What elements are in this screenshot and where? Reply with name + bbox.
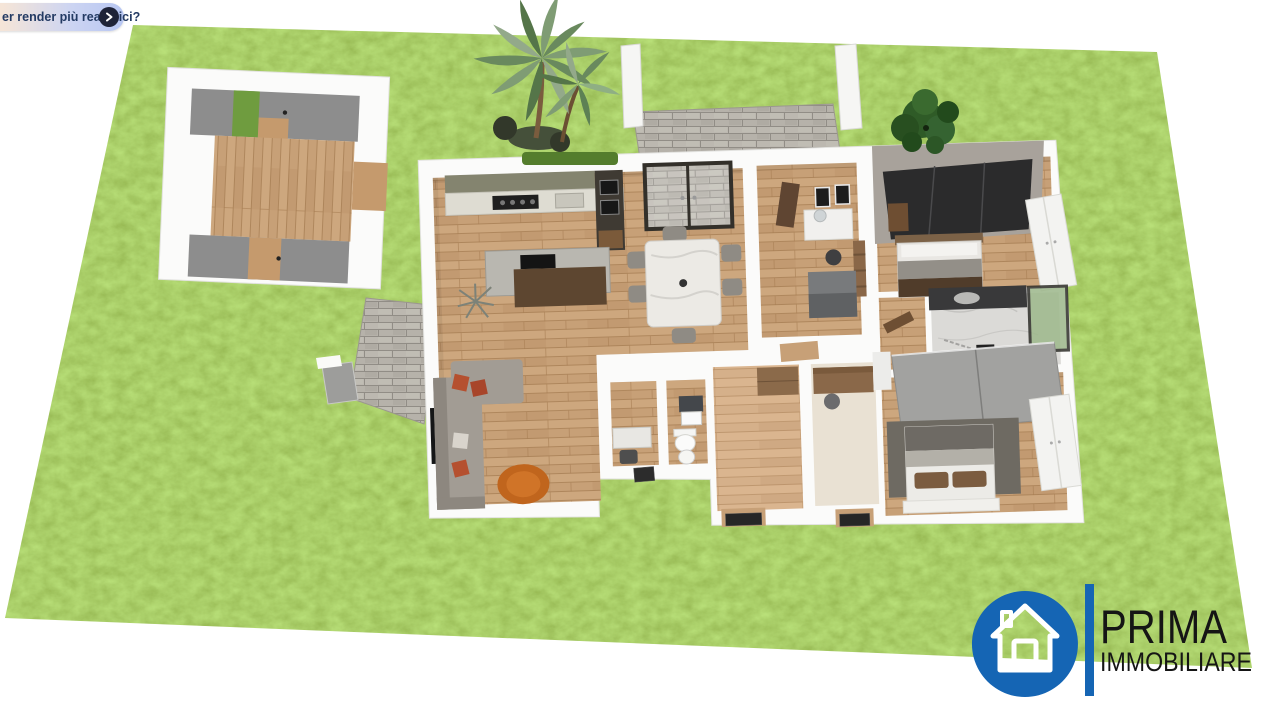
pillow xyxy=(952,471,986,488)
logo-bar xyxy=(1085,584,1094,696)
garden-wall-left xyxy=(621,44,643,128)
vanity-desk xyxy=(804,209,853,240)
island-table xyxy=(514,266,607,307)
desk xyxy=(613,427,652,448)
island-cooktop xyxy=(520,254,555,269)
brand-name: PRIMA xyxy=(1100,600,1228,653)
toilet xyxy=(675,434,696,452)
dining-chair xyxy=(722,278,743,296)
open-shelf xyxy=(598,230,623,249)
interior-doormat xyxy=(634,467,655,483)
pillow xyxy=(914,472,948,489)
dining-chair xyxy=(662,226,686,242)
closet-side xyxy=(872,352,891,391)
patio-french-door xyxy=(644,163,732,230)
throw-pillow xyxy=(470,379,488,397)
annex-floor xyxy=(211,136,355,242)
throw-pillow xyxy=(452,432,469,449)
dining-chair xyxy=(672,328,696,344)
annex-door-gap xyxy=(232,90,260,137)
mirror-cabinet xyxy=(679,396,703,413)
dining-chair xyxy=(628,285,649,303)
3d-floorplan-render: PRIMA IMMOBILIARE xyxy=(0,0,1261,720)
toast-text: er render più realistici? xyxy=(0,10,140,24)
dining-chair xyxy=(721,244,742,262)
doormat xyxy=(840,513,870,526)
glass-shower xyxy=(1028,286,1068,351)
throw-pillow xyxy=(452,374,470,392)
center-room xyxy=(757,367,799,396)
desk-chair xyxy=(619,450,637,465)
chevron-right-icon xyxy=(104,12,114,22)
wall-art xyxy=(815,187,830,206)
kitchen-sink xyxy=(555,193,583,208)
washbasin xyxy=(681,412,701,426)
doormat xyxy=(725,513,761,526)
wardrobe-drawers xyxy=(888,203,909,232)
door-threshold xyxy=(780,341,819,362)
annex-building xyxy=(159,67,392,289)
hedge xyxy=(522,152,618,165)
toast-next-button[interactable] xyxy=(99,7,119,27)
brand-subtitle: IMMOBILIARE xyxy=(1100,647,1252,677)
annex-side-door-sill xyxy=(352,162,388,211)
bidet xyxy=(678,450,694,464)
dining-chair xyxy=(627,251,648,269)
render-hint-toast[interactable]: er render più realistici? xyxy=(0,3,124,31)
wall-art xyxy=(835,185,850,204)
annex-threshold-south xyxy=(248,237,282,280)
bed-headboard xyxy=(903,498,999,513)
main-house xyxy=(418,140,1084,543)
floorplanner-viewport: PRIMA IMMOBILIARE er render più realisti… xyxy=(0,0,1261,720)
